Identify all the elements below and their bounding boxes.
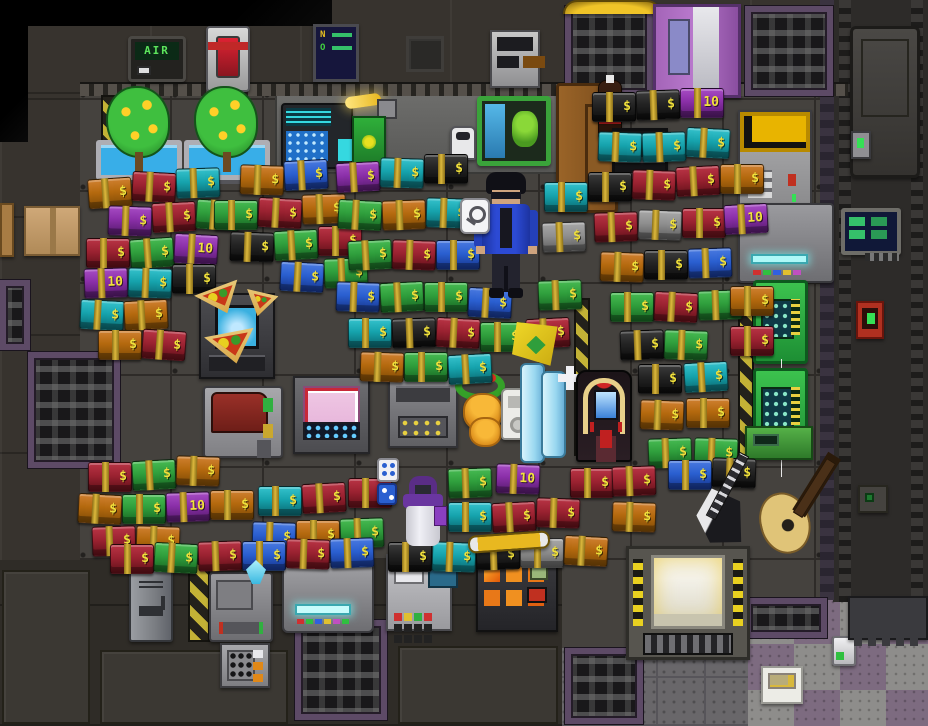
atmos-display: NO <box>313 24 359 82</box>
money-denomination: $ <box>305 236 314 251</box>
money-denomination: $ <box>119 469 127 484</box>
money-stack[interactable]: $ <box>88 462 132 492</box>
money-strap <box>253 165 261 195</box>
access-panel[interactable] <box>858 485 888 513</box>
money-strap <box>450 240 457 270</box>
money-denomination: $ <box>183 208 192 223</box>
money-stack[interactable]: $ <box>329 537 374 569</box>
money-denomination: 10 <box>189 498 205 514</box>
money-strap <box>165 202 174 232</box>
money-stack[interactable]: $ <box>544 182 588 212</box>
money-stack[interactable]: $ <box>379 157 424 189</box>
wall-panel-c <box>398 646 558 724</box>
money-stack[interactable]: $ <box>258 486 302 516</box>
money-denomination: $ <box>669 371 677 386</box>
money-stack[interactable]: $ <box>175 167 220 199</box>
money-stack[interactable]: $ <box>151 201 197 233</box>
money-denomination: $ <box>173 338 182 354</box>
money-denomination: $ <box>671 407 679 422</box>
money-stack[interactable]: $ <box>639 399 684 431</box>
money-stack[interactable]: $ <box>242 541 286 571</box>
money-denomination: $ <box>261 239 269 254</box>
money-strap <box>700 398 707 428</box>
money-denomination: $ <box>391 359 399 374</box>
money-denomination: $ <box>751 171 759 186</box>
money-strap <box>701 248 709 278</box>
money-strap <box>677 330 685 360</box>
money-stack[interactable]: $ <box>127 267 172 299</box>
money-strap <box>625 466 633 496</box>
money-strap <box>373 352 381 382</box>
money-strap <box>136 494 143 524</box>
player-shirt <box>500 208 512 248</box>
money-strap <box>449 318 458 348</box>
money-denomination: 10 <box>747 210 763 226</box>
fire-alarm[interactable] <box>856 301 884 339</box>
die-white[interactable] <box>377 458 399 482</box>
money-stack[interactable]: $ <box>337 199 383 231</box>
money-strap <box>124 544 131 574</box>
money-stack[interactable]: $ <box>491 501 537 533</box>
money-strap <box>625 502 633 532</box>
money-stack[interactable]: $ <box>210 490 254 520</box>
money-denomination: 10 <box>197 241 213 257</box>
money-stack[interactable]: $ <box>285 538 330 570</box>
money-stack[interactable]: $ <box>653 291 699 323</box>
money-stack[interactable]: $ <box>597 131 642 163</box>
money-denomination: $ <box>467 247 475 262</box>
recharger-machine[interactable] <box>738 110 812 210</box>
money-stack[interactable]: $ <box>541 221 586 253</box>
money-stack[interactable]: $ <box>644 250 688 280</box>
money-denomination: $ <box>111 307 120 322</box>
money-stack[interactable]: $ <box>131 459 177 491</box>
wall-panel-a <box>2 570 90 724</box>
money-strap <box>349 282 357 312</box>
money-strap <box>613 252 621 282</box>
money-denomination: $ <box>311 269 320 284</box>
money-strap <box>418 352 425 382</box>
money-stack[interactable]: $ <box>730 286 774 316</box>
money-stack[interactable]: $ <box>610 292 654 322</box>
money-denomination: $ <box>207 174 215 189</box>
money-stack[interactable]: $ <box>593 211 638 243</box>
money-strap <box>361 240 370 270</box>
money-stack[interactable]: $ <box>424 154 468 184</box>
money-strap <box>187 234 196 264</box>
money-strap <box>343 538 351 568</box>
money-denomination: $ <box>155 306 164 321</box>
copier-machine[interactable] <box>209 572 273 642</box>
money-stack[interactable]: $ <box>611 465 656 497</box>
money-strap <box>438 282 445 312</box>
money-stack[interactable]: $ <box>435 317 481 349</box>
money-denomination: $ <box>379 246 388 261</box>
money-stack[interactable]: $ <box>599 251 644 283</box>
money-denomination: $ <box>601 475 609 490</box>
robed-figure[interactable] <box>401 476 445 552</box>
money-strap <box>555 222 563 252</box>
money-denomination: $ <box>619 179 627 194</box>
open-crate[interactable] <box>761 666 803 704</box>
money-stack[interactable]: 10 <box>495 463 540 495</box>
light-switch[interactable] <box>851 131 871 159</box>
money-denomination: $ <box>129 337 137 352</box>
money-strap <box>362 478 369 508</box>
player-hand <box>476 246 485 254</box>
money-denomination: $ <box>551 545 559 560</box>
money-denomination: $ <box>717 135 726 150</box>
money-stack[interactable]: $ <box>335 161 381 193</box>
money-strap <box>602 172 609 202</box>
money-denomination: $ <box>367 168 376 183</box>
money-strap <box>102 462 109 492</box>
money-denomination: $ <box>245 207 253 222</box>
money-stack[interactable]: $ <box>77 493 123 525</box>
money-strap <box>293 262 302 292</box>
money-strap <box>667 292 676 322</box>
player-legs <box>504 266 508 292</box>
money-denomination: $ <box>707 172 716 187</box>
ore-machine-bottom[interactable] <box>282 561 374 633</box>
money-denomination: 10 <box>703 95 719 110</box>
money-stack[interactable]: 10 <box>83 267 128 299</box>
money-denomination: $ <box>479 474 487 489</box>
money-strap <box>551 280 559 310</box>
money-stack[interactable]: $ <box>239 164 284 196</box>
money-denomination: $ <box>139 213 147 228</box>
locker[interactable] <box>129 564 173 642</box>
status-display <box>841 208 901 255</box>
gas-readout: N <box>320 30 352 40</box>
money-strap <box>155 329 164 359</box>
money-strap <box>112 330 119 360</box>
money-strap <box>584 468 591 498</box>
money-denomination: $ <box>161 244 170 260</box>
money-stack[interactable]: $ <box>638 364 682 394</box>
money-stack[interactable]: $ <box>635 89 680 121</box>
money-stack[interactable]: $ <box>123 299 169 331</box>
money-denomination: $ <box>203 271 211 286</box>
money-strap <box>93 300 102 330</box>
money-denomination: $ <box>185 550 194 565</box>
money-stack[interactable]: $ <box>535 497 580 529</box>
money-strap <box>658 250 665 280</box>
money-denomination: $ <box>667 96 675 111</box>
money-strap <box>699 128 708 158</box>
money-denomination: $ <box>625 218 633 233</box>
money-strap <box>697 362 706 392</box>
money-stack[interactable]: $ <box>391 239 436 271</box>
money-strap <box>606 92 613 122</box>
money-stack[interactable]: $ <box>563 535 609 567</box>
money-denomination: $ <box>411 288 420 303</box>
stasis-machine[interactable] <box>477 96 551 166</box>
money-denomination: $ <box>669 217 677 232</box>
money-stack[interactable]: $ <box>283 159 329 191</box>
money-denomination: $ <box>715 368 724 383</box>
money-denomination: $ <box>569 286 577 301</box>
money-stack[interactable]: $ <box>682 208 726 238</box>
fax-machine[interactable] <box>203 386 283 458</box>
die-blue[interactable] <box>377 483 397 505</box>
money-stack[interactable]: $ <box>592 92 636 122</box>
money-denomination: $ <box>573 228 581 243</box>
air-alarm[interactable]: AIR <box>128 36 186 82</box>
money-strap <box>607 212 615 242</box>
money-denomination: $ <box>153 501 161 516</box>
money-denomination: $ <box>479 360 488 375</box>
money-stack[interactable]: 10 <box>680 88 724 118</box>
money-stack[interactable]: $ <box>424 282 468 312</box>
canister-mount[interactable] <box>206 26 250 92</box>
money-stack[interactable]: $ <box>448 502 492 532</box>
money-strap <box>137 300 146 330</box>
money-denomination: $ <box>717 405 725 420</box>
money-stack[interactable]: $ <box>348 318 392 348</box>
jukebox[interactable] <box>576 370 632 462</box>
money-strap <box>297 160 306 190</box>
money-strap <box>611 132 619 162</box>
orange-pile[interactable] <box>463 393 503 431</box>
catwalk-tile <box>295 620 387 720</box>
money-stack[interactable]: $ <box>685 127 731 159</box>
money-stack[interactable]: $ <box>720 164 764 194</box>
cardboard-box[interactable] <box>24 206 80 256</box>
money-strap <box>143 238 152 268</box>
money-stack[interactable]: $ <box>172 264 216 294</box>
money-stack[interactable]: $ <box>379 281 425 313</box>
airlock-door[interactable] <box>653 4 741 98</box>
money-denomination: $ <box>413 206 421 221</box>
money-strap <box>549 498 557 528</box>
money-strap <box>167 543 176 573</box>
money-strap <box>744 326 751 356</box>
money-stack[interactable]: $ <box>611 501 656 533</box>
money-stack[interactable]: $ <box>663 329 708 361</box>
money-denomination: $ <box>679 444 687 459</box>
wizard-item <box>434 506 447 526</box>
catwalk-tile <box>745 6 833 96</box>
money-denomination: $ <box>761 333 769 348</box>
money-stack[interactable]: $ <box>122 494 166 524</box>
money-strap <box>694 88 701 118</box>
money-stack[interactable]: $ <box>110 544 154 574</box>
player-character[interactable] <box>476 170 536 308</box>
keypad-machine[interactable] <box>220 643 270 688</box>
money-denomination: $ <box>317 546 325 561</box>
money-stack[interactable]: $ <box>214 200 258 230</box>
catwalk-tile <box>28 352 120 468</box>
money-strap <box>97 268 105 298</box>
money-denomination: $ <box>575 189 583 204</box>
money-denomination: $ <box>479 509 487 524</box>
money-strap <box>287 230 296 260</box>
money-denomination: $ <box>109 501 118 516</box>
money-strap <box>461 354 470 384</box>
hazard-chevrons <box>733 559 743 626</box>
gas-readout: O <box>320 43 352 53</box>
money-strap <box>395 200 403 230</box>
space-dark-1 <box>0 0 332 26</box>
money-stack[interactable]: $ <box>447 353 493 385</box>
money-stack[interactable]: $ <box>129 237 175 270</box>
money-stack[interactable]: $ <box>175 455 220 487</box>
money-stack[interactable]: $ <box>683 361 729 393</box>
money-strap <box>243 232 251 262</box>
money-stack[interactable]: $ <box>301 482 347 514</box>
money-strap <box>315 483 324 513</box>
money-strap <box>509 464 517 494</box>
player-shoe <box>508 288 523 298</box>
money-denomination: $ <box>141 551 149 566</box>
money-stack[interactable]: $ <box>335 281 380 313</box>
tree-1 <box>106 86 170 158</box>
money-strap <box>405 240 413 270</box>
game-viewport: AIRNO$$$$$$$$1010$$$$$$$$$$$$$$$$$$$$$$$… <box>0 0 928 726</box>
money-strap <box>189 168 197 198</box>
money-stack[interactable]: $ <box>197 540 242 572</box>
money-strap <box>651 210 659 240</box>
money-denomination: $ <box>643 509 651 524</box>
money-stack[interactable]: $ <box>347 239 393 271</box>
money-strap <box>315 194 323 224</box>
money-stack[interactable]: $ <box>359 351 404 383</box>
money-stack[interactable]: $ <box>447 467 492 499</box>
money-denomination: $ <box>423 247 431 262</box>
money-denomination: $ <box>333 489 342 504</box>
money-denomination: $ <box>595 543 604 558</box>
acoustic-guitar[interactable] <box>758 458 830 558</box>
catwalk-tile <box>745 598 827 638</box>
money-stack[interactable]: $ <box>279 261 325 293</box>
money-stack[interactable]: $ <box>730 326 774 356</box>
money-denomination: $ <box>651 336 659 351</box>
player-shoe <box>489 288 504 298</box>
money-denomination: $ <box>641 299 649 314</box>
wall-hatch[interactable] <box>406 36 444 72</box>
money-stack[interactable]: $ <box>98 330 142 360</box>
money-stack[interactable]: $ <box>637 209 682 241</box>
money-strap <box>505 502 514 532</box>
player-sunglasses <box>491 192 521 199</box>
kitchen-machine[interactable] <box>388 376 458 448</box>
money-strap <box>179 492 187 522</box>
money-stack[interactable]: $ <box>141 329 187 362</box>
money-strap <box>101 178 110 208</box>
money-stack[interactable]: $ <box>675 165 721 197</box>
space-dark-2 <box>0 0 28 142</box>
money-stack[interactable]: $ <box>381 199 426 231</box>
money-stack[interactable]: $ <box>404 352 448 382</box>
money-strap <box>224 490 231 520</box>
money-stack[interactable]: $ <box>229 231 274 263</box>
money-strap <box>558 182 565 212</box>
money-stack[interactable]: 10 <box>173 233 219 265</box>
money-strap <box>655 132 663 162</box>
money-stack[interactable]: 10 <box>165 491 210 523</box>
money-strap <box>711 290 719 320</box>
money-strap <box>494 322 501 352</box>
money-strap <box>734 164 741 194</box>
money-strap <box>462 502 469 532</box>
slot-console[interactable] <box>293 376 370 454</box>
money-denomination: $ <box>467 325 476 340</box>
money-stack[interactable]: $ <box>86 238 130 268</box>
money-denomination: $ <box>241 497 249 512</box>
money-stack[interactable]: $ <box>257 197 303 229</box>
money-stack[interactable]: $ <box>588 172 632 202</box>
wall-console[interactable] <box>490 30 540 88</box>
money-strap <box>228 200 235 230</box>
money-strap <box>624 292 631 322</box>
money-denomination: $ <box>719 254 727 269</box>
money-denomination: $ <box>673 138 681 153</box>
money-denomination: $ <box>411 165 419 180</box>
money-denomination: $ <box>423 324 431 339</box>
money-denomination: $ <box>761 293 769 308</box>
money-strap <box>696 208 703 238</box>
money-denomination: $ <box>271 172 279 187</box>
money-stack[interactable]: $ <box>131 171 177 203</box>
air-alarm-label: AIR <box>135 42 179 60</box>
money-stack[interactable]: $ <box>273 229 319 261</box>
money-denomination: $ <box>523 508 532 523</box>
money-stack[interactable]: $ <box>631 169 676 201</box>
money-strap <box>405 318 413 348</box>
machine-corner <box>848 596 928 640</box>
money-strap <box>461 468 469 498</box>
money-strap <box>737 204 746 234</box>
money-stack[interactable]: 10 <box>723 203 769 235</box>
money-strap <box>577 536 586 566</box>
money-stack[interactable]: $ <box>641 131 686 163</box>
money-stack[interactable]: $ <box>687 247 732 279</box>
money-stack[interactable]: $ <box>391 317 436 349</box>
money-strap <box>299 539 307 569</box>
money-denomination: $ <box>567 505 575 520</box>
money-strap <box>633 330 641 360</box>
examine-badge <box>460 198 490 234</box>
money-denomination: $ <box>695 337 703 352</box>
money-stack[interactable]: $ <box>570 468 614 498</box>
money-stack[interactable]: $ <box>686 398 730 428</box>
money-strap <box>439 198 447 228</box>
money-stack[interactable]: $ <box>619 329 664 361</box>
money-denomination: $ <box>361 544 369 559</box>
money-strap <box>91 494 100 524</box>
money-strap <box>653 400 661 430</box>
money-stack[interactable]: $ <box>537 279 582 311</box>
money-denomination: $ <box>629 139 637 154</box>
escape-pod[interactable] <box>626 546 750 660</box>
money-stack[interactable]: $ <box>79 299 125 331</box>
money-denomination: $ <box>631 259 639 274</box>
money-denomination: $ <box>207 463 215 478</box>
money-stack[interactable]: $ <box>153 542 199 574</box>
money-strap <box>145 460 154 490</box>
money-strap <box>211 541 219 571</box>
money-strap <box>121 206 129 236</box>
money-strap <box>272 486 279 516</box>
money-denomination: $ <box>369 207 378 222</box>
money-stack[interactable]: $ <box>107 205 152 237</box>
money-strap <box>186 264 193 294</box>
tree-2 <box>194 86 258 158</box>
money-strap <box>362 318 369 348</box>
money-strap <box>649 90 657 120</box>
money-denomination: $ <box>435 359 443 374</box>
